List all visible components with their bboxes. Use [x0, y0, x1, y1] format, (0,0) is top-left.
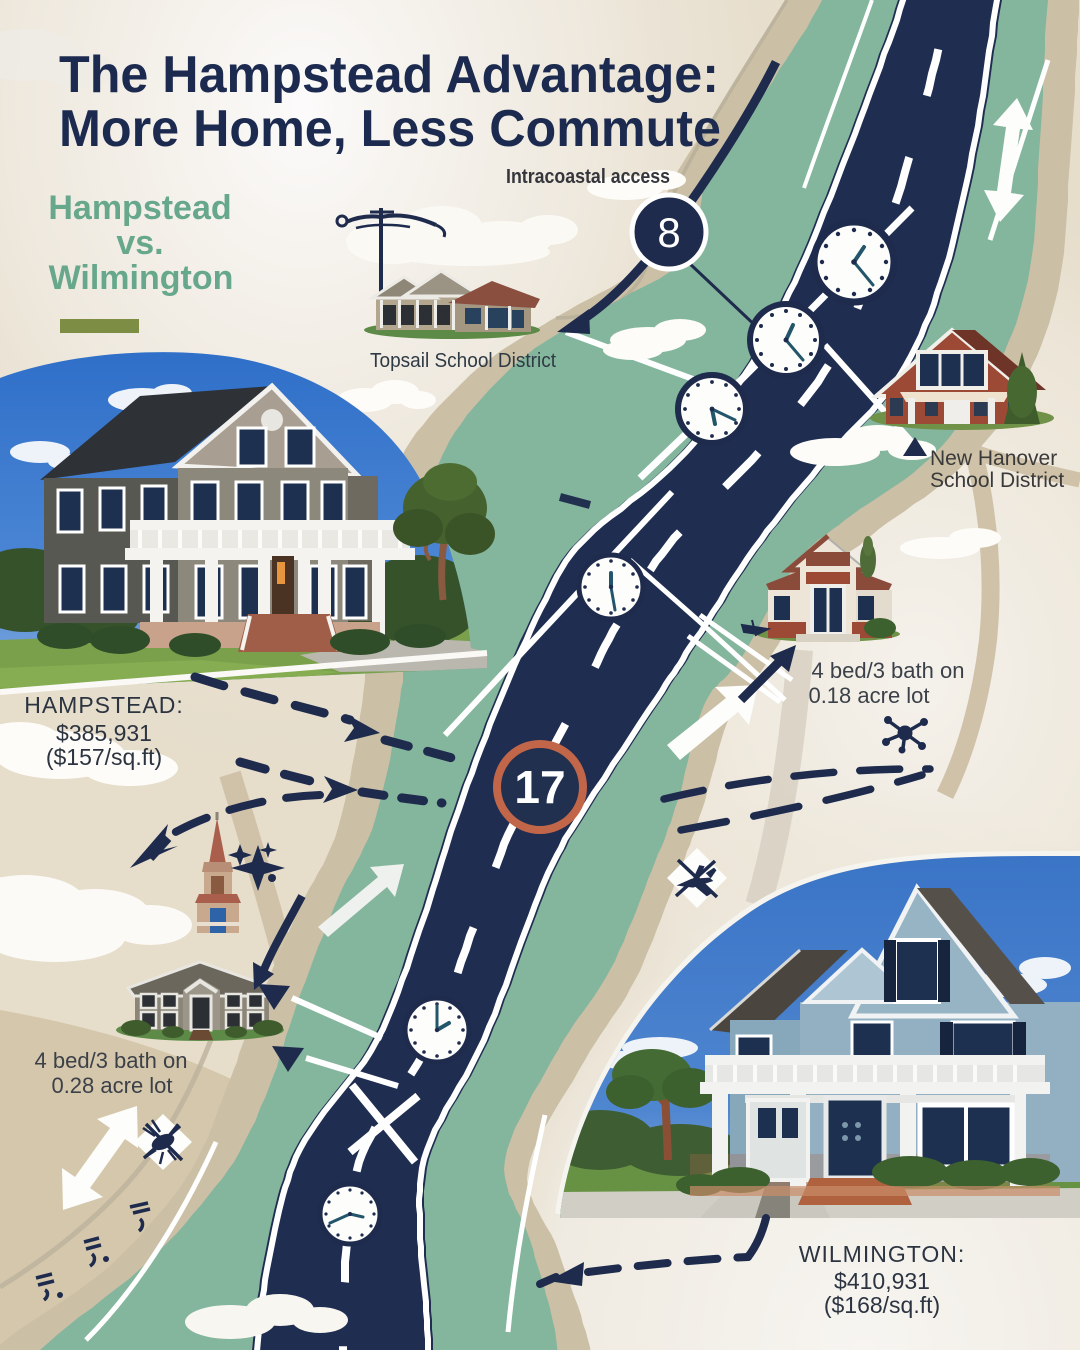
- svg-text:School District: School District: [930, 469, 1064, 492]
- svg-text:Wilmington: Wilmington: [49, 259, 234, 297]
- svg-text:vs.: vs.: [116, 224, 163, 262]
- svg-text:4 bed/3 bath on: 4 bed/3 bath on: [35, 1048, 188, 1073]
- svg-text:8: 8: [657, 209, 680, 256]
- svg-text:Hampstead: Hampstead: [48, 189, 231, 227]
- svg-text:17: 17: [514, 761, 565, 813]
- svg-text:More Home, Less Commute: More Home, Less Commute: [59, 100, 721, 158]
- svg-text:0.28 acre lot: 0.28 acre lot: [51, 1073, 172, 1098]
- svg-text:$385,931: $385,931: [56, 720, 152, 746]
- svg-text:New Hanover: New Hanover: [930, 447, 1057, 470]
- svg-text:($168/sq.ft): ($168/sq.ft): [824, 1292, 940, 1318]
- svg-text:4 bed/3 bath on: 4 bed/3 bath on: [812, 658, 965, 683]
- svg-text:$410,931: $410,931: [834, 1268, 930, 1294]
- svg-text:HAMPSTEAD:: HAMPSTEAD:: [24, 692, 184, 718]
- svg-text:The Hampstead Advantage:: The Hampstead Advantage:: [59, 46, 719, 104]
- svg-text:Topsail School District: Topsail School District: [370, 350, 556, 372]
- svg-text:WILMINGTON:: WILMINGTON:: [799, 1241, 965, 1267]
- svg-text:($157/sq.ft): ($157/sq.ft): [46, 744, 162, 770]
- svg-text:0.18 acre lot: 0.18 acre lot: [808, 683, 929, 708]
- svg-text:Intracoastal access: Intracoastal access: [506, 166, 670, 188]
